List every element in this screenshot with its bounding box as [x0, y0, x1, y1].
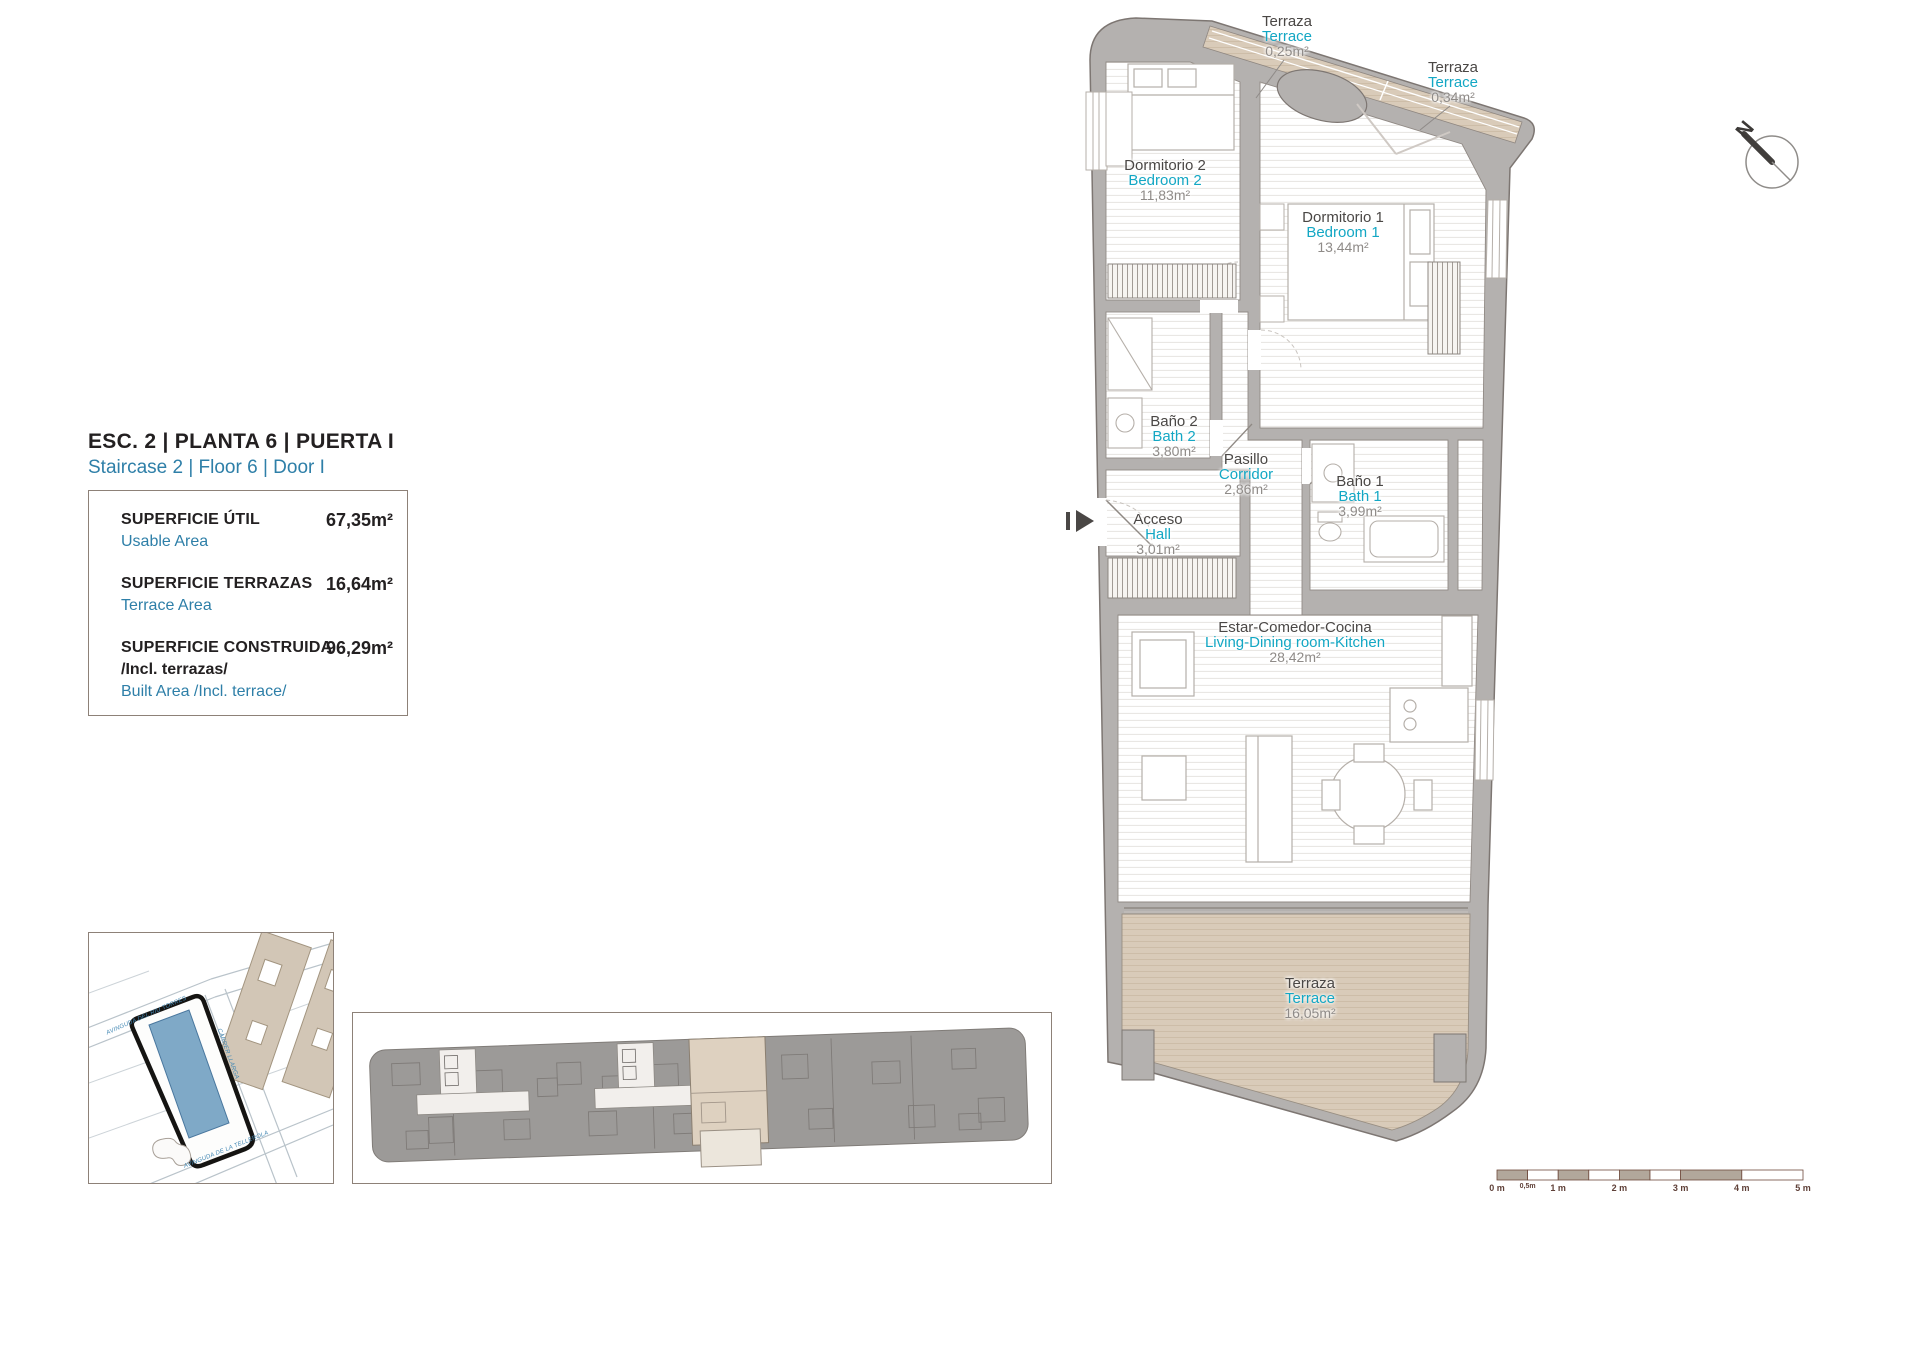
usable-area-value: 67,35m²	[326, 510, 393, 531]
highlighted-unit	[689, 1037, 769, 1168]
terrace-pier	[1434, 1034, 1466, 1082]
scale-bar	[1497, 1170, 1803, 1180]
plan-title-block: ESC. 2 | PLANTA 6 | PUERTA I Staircase 2…	[88, 430, 394, 479]
scale-label-2m: 2 m	[1612, 1183, 1628, 1193]
overview-drawing	[353, 1013, 1051, 1183]
room-label-living: Estar-Comedor-Cocina Living-Dining room-…	[1190, 620, 1400, 665]
scale-label-5m: 5 m	[1795, 1183, 1811, 1193]
room-label-hall: Acceso Hall 3,01m²	[1083, 512, 1233, 557]
room-label-bedroom1: Dormitorio 1 Bedroom 1 13,44m²	[1268, 210, 1418, 255]
usable-area-sublabel: Usable Area	[121, 533, 208, 551]
usable-area-label: SUPERFICIE ÚTIL	[121, 511, 260, 529]
scale-label-05m: 0,5m	[1520, 1183, 1536, 1190]
room-label-terrace-main: Terraza Terrace 16,05m²	[1235, 976, 1385, 1021]
closet-floor	[1458, 440, 1483, 590]
radiator	[1106, 92, 1132, 166]
window	[1486, 200, 1507, 278]
north-compass-icon	[1744, 134, 1798, 188]
built-area-value: 96,29m²	[326, 638, 393, 659]
wardrobe	[1108, 264, 1236, 298]
bed	[1128, 64, 1234, 150]
terrace-area-sublabel: Terrace Area	[121, 597, 212, 615]
terrace-area-label: SUPERFICIE TERRAZAS	[121, 575, 312, 593]
site-location-map: AVINGUDA DEL RIU TORRES CARRER LLARGA AV…	[88, 932, 334, 1184]
wardrobe	[1428, 262, 1460, 354]
scale-label-4m: 4 m	[1734, 1183, 1750, 1193]
plan-title-es: ESC. 2 | PLANTA 6 | PUERTA I	[88, 430, 394, 454]
room-label-terrace-top: Terraza Terrace 0,25m²	[1212, 14, 1362, 59]
building-floor-overview	[352, 1012, 1052, 1184]
room-label-bedroom2: Dormitorio 2 Bedroom 2 11,83m²	[1090, 158, 1240, 203]
room-label-terrace-side: Terraza Terrace 0,34m²	[1378, 60, 1528, 105]
terrace-pier	[1122, 1030, 1154, 1080]
site-map-drawing	[89, 933, 333, 1183]
terrace-area-value: 16,64m²	[326, 574, 393, 595]
wardrobe	[1108, 558, 1236, 598]
room-label-bath1: Baño 1 Bath 1 3,99m²	[1285, 474, 1435, 519]
built-area-label: SUPERFICIE CONSTRUIDA	[121, 639, 332, 657]
terrace-main-floor	[1122, 914, 1470, 1130]
scale-label-0m: 0 m	[1489, 1183, 1505, 1193]
floor-plan-sheet: ESC. 2 | PLANTA 6 | PUERTA I Staircase 2…	[0, 0, 1920, 1357]
scale-label-3m: 3 m	[1673, 1183, 1689, 1193]
built-area-sublabel: Built Area /Incl. terrace/	[121, 683, 286, 701]
window	[1475, 700, 1494, 780]
building-slab	[369, 1028, 1029, 1179]
area-summary-box: SUPERFICIE ÚTIL 67,35m² Usable Area SUPE…	[88, 490, 408, 716]
built-area-note: /Incl. terrazas/	[121, 661, 228, 679]
plan-title-en: Staircase 2 | Floor 6 | Door I	[88, 457, 394, 479]
scale-label-1m: 1 m	[1550, 1183, 1566, 1193]
nightstand	[1260, 296, 1284, 322]
